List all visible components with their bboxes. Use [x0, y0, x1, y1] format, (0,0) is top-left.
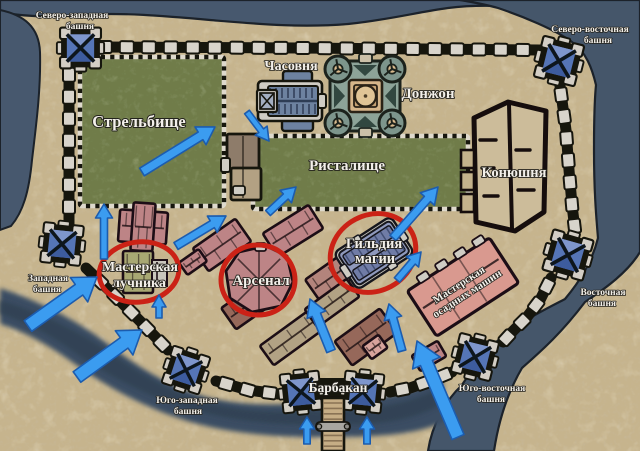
svg-text:Конюшня: Конюшня [482, 165, 547, 181]
svg-text:башня: башня [174, 406, 202, 417]
svg-text:Восточная: Восточная [580, 288, 625, 298]
svg-text:башня: башня [477, 394, 505, 405]
svg-text:Гильдия: Гильдия [346, 236, 403, 252]
svg-text:Барбакан: Барбакан [309, 380, 368, 395]
svg-text:Западная: Западная [28, 274, 68, 284]
svg-text:Донжон: Донжон [401, 86, 454, 102]
svg-text:Юго-западная: Юго-западная [156, 396, 218, 406]
svg-text:Северо-западная: Северо-западная [36, 11, 109, 21]
svg-text:башня: башня [584, 35, 612, 46]
svg-text:башня: башня [66, 21, 94, 32]
svg-text:башня: башня [33, 284, 61, 295]
svg-text:Мастерская: Мастерская [102, 260, 178, 275]
svg-text:Арсенал: Арсенал [232, 273, 290, 289]
svg-text:Часовня: Часовня [264, 59, 318, 74]
svg-text:Северо-восточная: Северо-восточная [551, 25, 629, 35]
svg-text:Юго-восточная: Юго-восточная [459, 384, 526, 394]
svg-text:Стрельбище: Стрельбище [92, 112, 186, 131]
svg-text:лучника: лучника [112, 276, 166, 291]
svg-text:магии: магии [355, 251, 395, 267]
svg-text:башня: башня [588, 298, 616, 309]
svg-text:Ристалище: Ристалище [309, 158, 385, 174]
